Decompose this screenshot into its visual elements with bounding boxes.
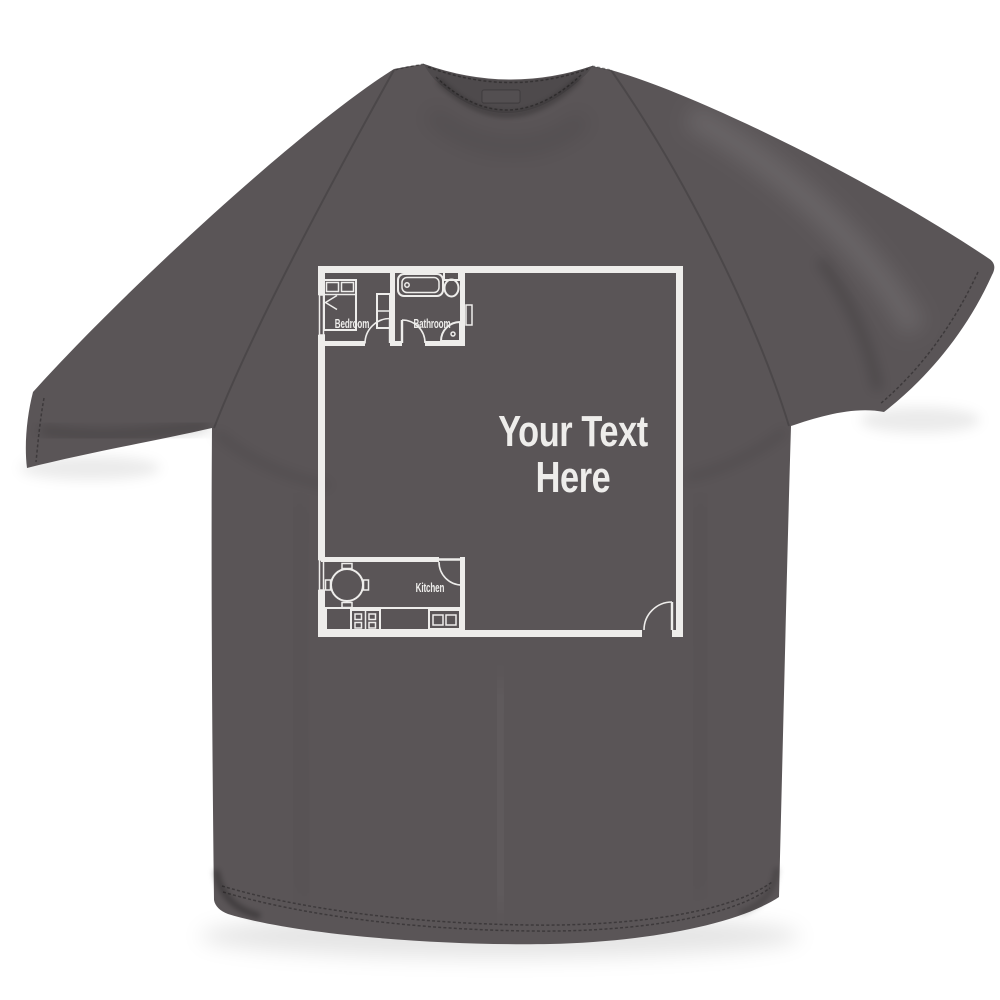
radiator-icon bbox=[466, 305, 472, 325]
product-photo: Bedroom Bathroom Kitchen Your Text Here bbox=[0, 0, 1000, 1000]
bathtub-icon bbox=[398, 274, 443, 296]
kitchen-furniture bbox=[326, 564, 461, 631]
custom-text-line1: Your Text bbox=[498, 407, 648, 456]
chair-icon bbox=[342, 603, 352, 608]
floor-plan-print: Bedroom Bathroom Kitchen Your Text Here bbox=[318, 266, 683, 637]
pillow-icon bbox=[342, 283, 354, 292]
chair-icon bbox=[364, 580, 369, 590]
dining-table-icon bbox=[326, 564, 369, 608]
stove-icon bbox=[351, 610, 380, 630]
entry-door-opening bbox=[642, 629, 672, 637]
wardrobe-icon bbox=[377, 294, 390, 328]
duvet-fold-icon bbox=[326, 296, 338, 310]
entry-door-icon bbox=[644, 602, 672, 630]
custom-text-line2: Here bbox=[536, 453, 611, 502]
doors bbox=[365, 319, 672, 631]
pillow-icon bbox=[327, 283, 339, 292]
chair-icon bbox=[342, 564, 352, 569]
toilet-icon bbox=[444, 272, 459, 297]
bathroom-label: Bathroom bbox=[413, 317, 450, 331]
kitchen-label: Kitchen bbox=[416, 581, 445, 595]
bedroom-label: Bedroom bbox=[335, 317, 369, 331]
neck-label-tag bbox=[482, 90, 520, 103]
kitchen-sink-icon bbox=[429, 610, 460, 629]
chair-icon bbox=[326, 580, 331, 590]
